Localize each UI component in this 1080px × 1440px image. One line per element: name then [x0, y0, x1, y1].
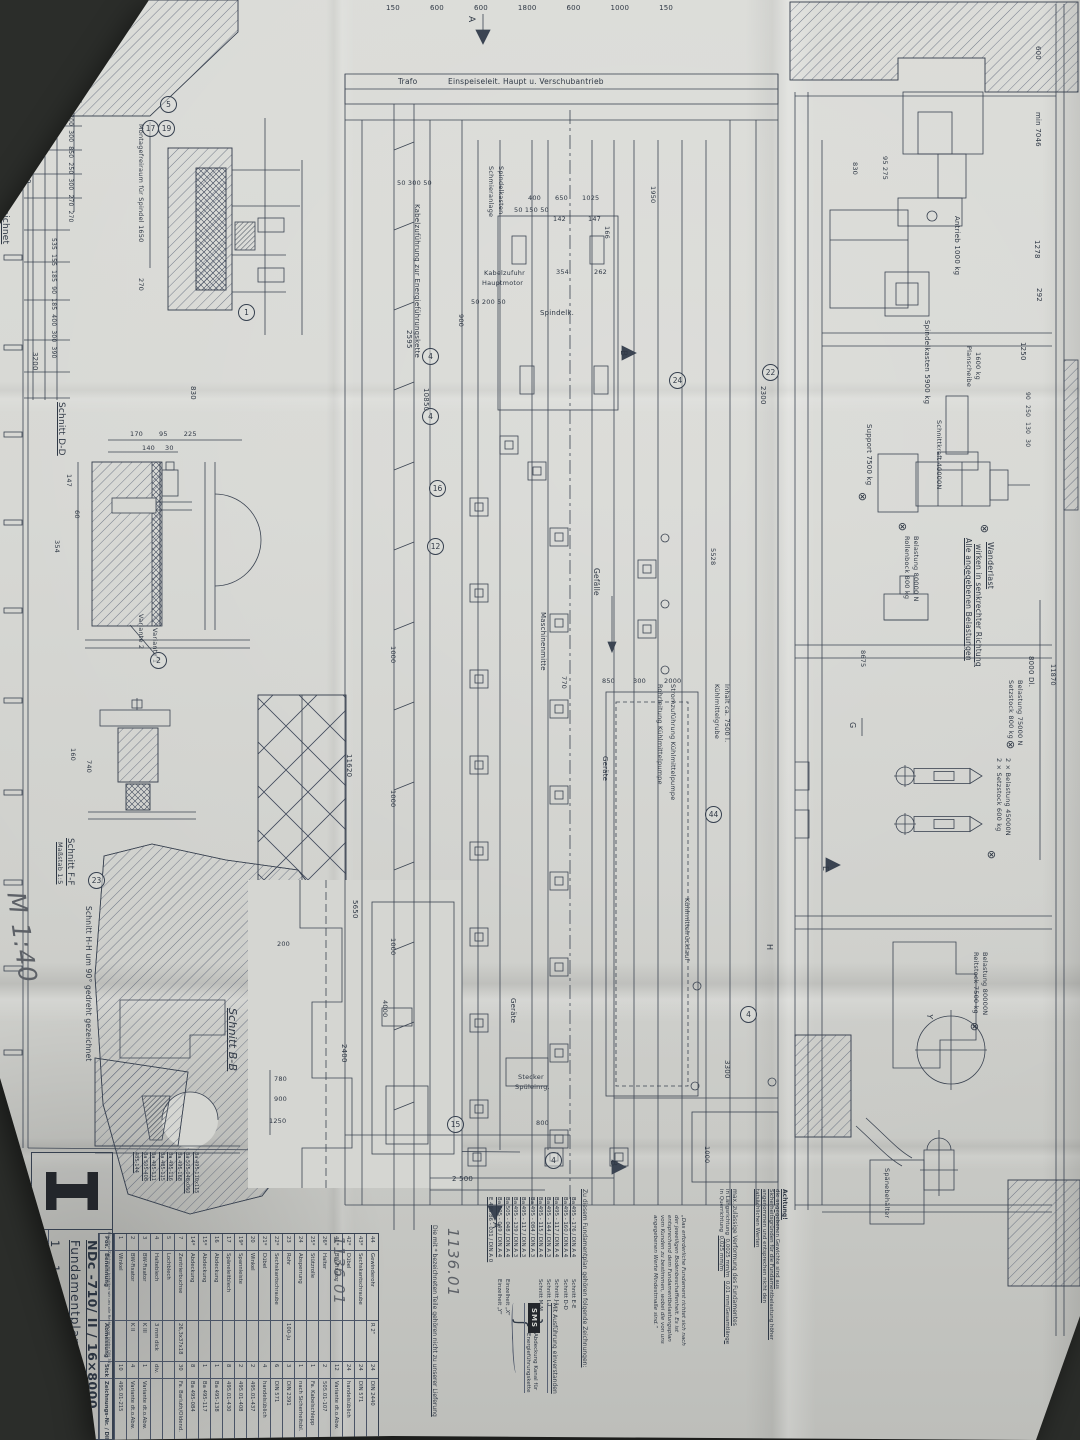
- dim-value: 90: [50, 286, 57, 294]
- dim: 142: [553, 216, 566, 223]
- spindelkasten-label: Spindelkasten 5900 kg: [922, 320, 930, 404]
- part-dim: K III: [139, 1321, 150, 1362]
- part-pos: 15*: [199, 1234, 210, 1251]
- part-qty: 4: [127, 1362, 138, 1379]
- drawing-title: Fundamentplan: [68, 1240, 82, 1347]
- support-label: Support 7500 kg: [864, 424, 872, 485]
- part-ref: Fa. Kabelschlepp: [307, 1379, 318, 1440]
- dim: 147: [65, 474, 72, 487]
- field-divider: [40, 1230, 41, 1350]
- dim: 600: [1033, 46, 1041, 60]
- part-name: Stützrolle: [307, 1251, 318, 1321]
- part-ref: DIN 571: [355, 1379, 366, 1440]
- parts-row: 43*Sechskantschraube24DIN 571: [354, 1234, 366, 1440]
- part-qty: 10: [115, 1362, 126, 1379]
- part-dim: [247, 1321, 258, 1362]
- section-letter-h: H: [764, 944, 773, 950]
- dim: 1950: [649, 186, 656, 203]
- part-name: Abdeckung: [211, 1251, 222, 1321]
- balloon-4: 4: [740, 1006, 757, 1023]
- part-name: Halter: [319, 1251, 330, 1321]
- part-ref: DIN 2440: [367, 1379, 378, 1440]
- part-qty: 2: [235, 1362, 246, 1379]
- dim: 1000: [389, 790, 396, 807]
- part-pos: 23: [283, 1234, 294, 1251]
- right-dimension-chain: 9025013030: [1024, 392, 1031, 447]
- dim-value: 150: [386, 4, 400, 12]
- dim: 800: [536, 1120, 549, 1127]
- drawing-ref: Ba 495 - 117 / DIN A 3: [520, 1197, 527, 1279]
- part-name: Abdeckung: [199, 1251, 210, 1321]
- part-dim: [259, 1321, 270, 1362]
- part-dim: 3 mm dick: [151, 1321, 162, 1362]
- dim-value: 400: [528, 194, 541, 202]
- part-dim: [223, 1321, 234, 1362]
- part-dim: [115, 1321, 126, 1362]
- part-pos: 7: [175, 1234, 186, 1251]
- masstab-label: Maßstab 1:5: [56, 842, 63, 884]
- margin-ref: Ba 495-110x115: [193, 1152, 199, 1232]
- dim: 270: [137, 278, 144, 291]
- variante-2-label: Variante 2: [137, 614, 144, 649]
- dim: 1000: [703, 1146, 710, 1163]
- margin-ref: Ba 495-116: [168, 1152, 174, 1232]
- part-dim: [235, 1321, 246, 1362]
- part-dim: [355, 1321, 366, 1362]
- part-pos: 1: [115, 1234, 126, 1251]
- dim: 50 200 50: [471, 299, 506, 306]
- part-name: Gewinderohr: [367, 1251, 378, 1321]
- part-pos: 17: [223, 1234, 234, 1251]
- dim-value: 850: [602, 677, 615, 685]
- part-qty: 24: [355, 1362, 366, 1379]
- dim-value: 185: [50, 270, 57, 282]
- planscheibe-label-2: 1600 kg: [974, 352, 981, 380]
- beam-logo-icon: [46, 1172, 98, 1210]
- balloon-24: 24: [669, 372, 686, 389]
- drawing-ref: Ba 495 - 160 / DIN A 4: [561, 1197, 568, 1279]
- part-ref: nach Sicherheitsbl.: [295, 1379, 306, 1440]
- dim-value: 1000: [611, 4, 630, 12]
- dim-value: 850: [67, 146, 74, 158]
- dim: 200: [277, 941, 290, 948]
- part-pos: 25*: [307, 1234, 318, 1251]
- part-name: BW-Fixator: [331, 1251, 342, 1321]
- parts-row: 17Späneleitblech8495.01-430: [222, 1234, 234, 1440]
- load-point-icon: ⊗: [986, 850, 997, 859]
- part-qty: 24: [343, 1362, 354, 1379]
- part-name: Sechskantschraube: [271, 1251, 282, 1321]
- part-ref: handelsüblich: [259, 1379, 270, 1440]
- parts-row: 25*Stützrolle1Fa. Kabelschlepp: [306, 1234, 318, 1440]
- margin-ref: Ba 495-168: [176, 1152, 182, 1232]
- balloon-12: 12: [427, 538, 444, 555]
- dim-value: 170: [130, 430, 143, 438]
- deform-row-label: in Querrichtung: [718, 1189, 724, 1232]
- part-dim: R 2": [367, 1321, 378, 1362]
- section-dd: [78, 440, 261, 660]
- dim-value: 1025: [582, 194, 599, 202]
- signature-squiggle: [511, 1303, 520, 1373]
- dim-value: 390: [50, 346, 57, 358]
- signature-squiggle: [35, 1238, 43, 1278]
- part-ref: Variante dt.o.Abw.: [139, 1379, 150, 1440]
- parts-row: 23Rohr100-Ju3DIN 2391: [282, 1234, 294, 1440]
- reitstock-label-2: Belastung 80000N: [981, 952, 988, 1015]
- part-ref: 495.01-430: [223, 1379, 234, 1440]
- spindelk-label: Spindelk.: [540, 310, 574, 318]
- drawing-ref: Ba 495 - 115 / DIN A 4: [536, 1197, 543, 1279]
- maschinenmitte-label: Maschinenmitte: [538, 612, 546, 671]
- section-hh-label: Schnitt H-H um 90° gedreht gezeichnet: [84, 906, 92, 1062]
- dim: 1250: [269, 1118, 286, 1125]
- geraete-label-2: Geräte: [508, 998, 516, 1023]
- dim-value: 1800: [518, 4, 537, 12]
- part-qty: 24: [367, 1362, 378, 1379]
- attention-body: die angegebenen Gewichte sind aus Sicher…: [753, 1189, 781, 1341]
- dim: 5650: [350, 900, 358, 919]
- part-ref: DIN 2391: [283, 1379, 294, 1440]
- dim-value: 30: [1024, 439, 1031, 447]
- spaenebehaelter-label: Spänebehälter: [883, 1168, 890, 1218]
- logo-cell: [32, 1153, 112, 1230]
- part-name: BW-Fixator: [127, 1251, 138, 1321]
- part-qty: 1: [139, 1362, 150, 1379]
- dim-value: 600: [430, 4, 444, 12]
- parts-row: 26*Halter2505.01-107: [318, 1234, 330, 1440]
- schmieranlage-label-2: Spindelkasten: [497, 166, 504, 214]
- dim-value: 300: [67, 130, 74, 142]
- part-name: Abdeckung: [187, 1251, 198, 1321]
- dim-value: 300: [50, 330, 57, 342]
- part-dim: K II: [127, 1321, 138, 1362]
- dim-value: 250: [67, 162, 74, 174]
- parts-row: 7Zentrierbuchse26,3x37x1830Fa. Barluth/O…: [174, 1234, 186, 1440]
- part-name: Späneleitblech: [223, 1251, 234, 1321]
- drawing-ref: Ba 495 - 144 / DIN A 3: [545, 1197, 552, 1279]
- dim-value: 300: [67, 114, 74, 126]
- dim-value: 650: [555, 194, 568, 202]
- dim: 3300: [722, 1060, 730, 1079]
- part-ref: Variante dt.o.Abw.: [331, 1379, 342, 1440]
- kabelzufuhr-label-2: Hauptmotor: [482, 280, 523, 287]
- dim: 2300: [758, 386, 766, 405]
- load-point-icon: ⊗: [979, 524, 990, 533]
- dim-value: 300: [67, 178, 74, 190]
- dim-value: 140: [142, 444, 155, 452]
- spindel-dimension-chain: 4006501025: [528, 194, 599, 202]
- wanderlast-label: Wanderlast: [985, 542, 994, 589]
- parts-row: 22*Sechskantschraube6DIN 571: [270, 1234, 282, 1440]
- part-qty: 4: [259, 1362, 270, 1379]
- einspeise-label: Einspeiseleit. Haupt u. Verschubantrieb: [448, 78, 604, 86]
- dim: 3200: [30, 352, 38, 371]
- part-qty: 1: [307, 1362, 318, 1379]
- part-ref: Ba 495-117: [199, 1379, 210, 1440]
- part-ref: 495.01-408: [235, 1379, 246, 1440]
- part-pos: 5: [163, 1234, 174, 1251]
- dim: 830: [188, 386, 196, 400]
- dim-value: 300: [633, 677, 646, 685]
- approval-text: Mit Ausführung einverstanden: [551, 1303, 558, 1435]
- dim: 1250: [1018, 342, 1026, 361]
- drawing-name: Schnitt D-D: [561, 1279, 568, 1310]
- cc-dimension-ladder: 500200300300850250300270270: [67, 82, 74, 223]
- dim-value: 155: [50, 254, 57, 266]
- balloon-4: 4: [545, 1152, 562, 1169]
- antrieb-label: Antrieb 1000 kg: [952, 216, 960, 275]
- photo-of-foundation-plan: Schnitt C-C um 90° gedreht gezeichnet Mo…: [0, 0, 1080, 1440]
- stamp-line: [524, 1303, 525, 1393]
- part-ref: 495.01-437: [247, 1379, 258, 1440]
- deformation-title: max. zulässige Verformung des Fundamente…: [731, 1189, 739, 1349]
- part-ref: DIN 571: [271, 1379, 282, 1440]
- belastungen-note: Alle angegebenen Belastungen: [964, 538, 972, 661]
- belastungen-note-2: wirken in senkrechter Richtung: [974, 544, 982, 667]
- parts-row: 16Abdeckung1Ba 495-138: [210, 1234, 222, 1440]
- part-pos: 44: [367, 1234, 378, 1251]
- drawing-name: Schnitt E-E: [569, 1279, 576, 1308]
- deform-row-value: 0,0025 mm/m: [725, 1238, 731, 1277]
- part-qty: 6: [271, 1362, 282, 1379]
- dim-value: 185: [50, 298, 57, 310]
- dim-value: 250: [1024, 405, 1031, 417]
- setzstock600-label-2: 2 × Belastung 45000N: [1004, 758, 1011, 836]
- part-qty: 3: [283, 1362, 294, 1379]
- dim: 770: [560, 676, 567, 689]
- balloon-19: 19: [158, 120, 175, 137]
- dim: 262: [594, 269, 607, 276]
- parts-row: 5Lochblech: [162, 1234, 174, 1440]
- section-cc: [24, 0, 302, 400]
- dim: 830: [851, 162, 858, 175]
- part-pos: 42*: [343, 1234, 354, 1251]
- cc-dimension-ladder-2: 53515518590185400300390: [50, 238, 57, 358]
- part-ref: Ba 495-084: [187, 1379, 198, 1440]
- drawing-number: F495-05: [34, 1393, 45, 1436]
- dim-value: 270: [67, 194, 74, 206]
- trafo-label: Trafo: [398, 78, 417, 86]
- schmieranlage-label: Schmieranlage: [487, 166, 494, 217]
- part-ref: [151, 1379, 162, 1440]
- drawing-name: Einzelheit „X“: [503, 1279, 510, 1316]
- drawings-list-row: Ba 505 - 049 / DIN A 4Einzelheit „Y“: [495, 1197, 502, 1417]
- parts-rows: 44GewinderohrR 2"24DIN 244043*Sechskants…: [114, 1234, 378, 1440]
- part-pos: 16: [211, 1234, 222, 1251]
- drawings-list-row: Ba 495 - 160 / DIN A 4Schnitt D-D: [561, 1197, 568, 1417]
- rollenbock-label: Rollenbock 800 kg: [903, 536, 910, 599]
- part-name: Dübel: [343, 1251, 354, 1321]
- part-name: Dübel: [259, 1251, 270, 1321]
- drawing-sheet: Schnitt C-C um 90° gedreht gezeichnet Mo…: [0, 0, 1080, 1440]
- notes-block: Achtung! die angegebenen Gewichte sind a…: [418, 1185, 790, 1440]
- montagefreiraum-label: Montagefreiraum für Spindel 1650: [137, 124, 144, 242]
- parts-row: 1Winkel10495.01-215: [114, 1234, 126, 1440]
- dim-value: 150: [659, 4, 673, 12]
- drawing-name: Schnitt J-J: [553, 1279, 560, 1305]
- stecker-label: Stecker: [518, 1074, 544, 1081]
- name-plate: Für diese Zeichnung behalten wir uns all…: [31, 1152, 113, 1440]
- part-ref: 495.01-215: [115, 1379, 126, 1440]
- geraete-label: Geräte: [600, 756, 608, 781]
- dim-value: 2000: [664, 677, 681, 685]
- part-ref: Variante dt.o.Abw.: [127, 1379, 138, 1440]
- part-dim: [307, 1321, 318, 1362]
- parts-row: 19*Spannleiste2495.01-408: [234, 1234, 246, 1440]
- part-pos: 4: [151, 1234, 162, 1251]
- part-name: BW-Fixator: [139, 1251, 150, 1321]
- top-dimension-chain: 15060060018006001000150: [386, 4, 673, 12]
- dim: 4000: [381, 1000, 388, 1017]
- dim: 160: [69, 748, 76, 761]
- attention-note: Achtung! die angegebenen Gewichte sind a…: [753, 1189, 788, 1341]
- part-dim: [271, 1321, 282, 1362]
- section-ff: [88, 698, 196, 819]
- part-pos: 26*: [319, 1234, 330, 1251]
- balloon-22: 22: [762, 364, 779, 381]
- dim: 166: [603, 226, 610, 239]
- part-pos: 41*: [331, 1234, 342, 1251]
- margin-ref: Ba 505-048x060: [185, 1152, 191, 1232]
- margin-ref: Ba 505-408: [142, 1152, 148, 1232]
- part-name: Winkel: [115, 1251, 126, 1321]
- part-dim: [343, 1321, 354, 1362]
- part-dim: [319, 1321, 330, 1362]
- section-letter-e: E: [820, 866, 829, 871]
- part-qty: 8: [187, 1362, 198, 1379]
- dim: 1000: [389, 646, 396, 663]
- part-ref: Fa. Barluth/Oldend.: [175, 1379, 186, 1440]
- balloon-15: 15: [447, 1116, 464, 1133]
- load-point-icon: ⊗: [857, 492, 868, 501]
- dim: 2400: [339, 1044, 347, 1063]
- dd-dimension-chain-2: 14030: [142, 444, 174, 452]
- drawings-list-row: E 495.86 - 031 / DIN A 0: [487, 1197, 494, 1417]
- dim-value: 90: [1024, 392, 1031, 400]
- part-dim: [187, 1321, 198, 1362]
- drawings-list-row: Ba 505 - 048 / DIN A 4Einzelheit „X“: [503, 1197, 510, 1417]
- drawing-ref: Ba 495 - 117 / DIN A 4: [553, 1197, 560, 1279]
- section-letter-a: A: [466, 16, 476, 22]
- drawings-list-header: Zu diesem Fundamentplan gehören folgende…: [581, 1189, 589, 1368]
- mid-dimension-chain: 8503002000: [602, 677, 681, 685]
- kabelzufuhr-label: Kabelzufuhr: [484, 270, 525, 277]
- dim: 740: [85, 760, 92, 773]
- load-point-icon: ⊗: [897, 522, 908, 531]
- dim: 8000 Dl.: [1026, 656, 1034, 687]
- load-point-icon: ⊗: [969, 1022, 980, 1031]
- part-qty: [163, 1362, 174, 1379]
- dim: 50 300 50: [397, 180, 432, 187]
- rollenbock-label-2: Belastung 80000 N: [912, 536, 919, 602]
- part-pos: 20: [247, 1234, 258, 1251]
- name-plate-main: Für diese Zeichnung behalten wir uns all…: [32, 1230, 112, 1439]
- part-name: Sechskantschraube: [355, 1251, 366, 1321]
- part-qty: 1: [211, 1362, 222, 1379]
- parts-row: 15*Abdeckung1Ba 495-117: [198, 1234, 210, 1440]
- drawings-list-row: Ba 495 - 176 / DIN A 4Schnitt E-E: [569, 1197, 576, 1417]
- margin-ref: Ba 485-115: [159, 1152, 165, 1232]
- parts-row: 41*BW-Fixator12Variante dt.o.Abw.: [330, 1234, 342, 1440]
- dim: 5950: [23, 165, 31, 184]
- part-qty: 30: [175, 1362, 186, 1379]
- part-pos: 19*: [235, 1234, 246, 1251]
- load-point-icon: ⊗: [1005, 740, 1016, 749]
- margin-ref: 485-144: [134, 1152, 140, 1232]
- stromzufuehrung-label: Stromzuführung Kühlmittelpumpe: [669, 684, 676, 800]
- gefaelle-label: Gefälle: [592, 568, 600, 596]
- part-dim: 100-Ju: [283, 1321, 294, 1362]
- part-pos: 3: [139, 1234, 150, 1251]
- section-cc-label: Schnitt C-C um 90° gedreht gezeichnet: [0, 60, 10, 244]
- drawing-ref: Ba 495 - 139 / DIN A 3: [512, 1197, 519, 1279]
- section-letter-y: Y: [924, 1014, 933, 1019]
- part-qty: 2: [247, 1362, 258, 1379]
- title-block: 44GewinderohrR 2"24DIN 244043*Sechskants…: [30, 1150, 405, 1440]
- dim: 8675: [859, 650, 866, 667]
- star-note: Die mit * bezeichneten Teile gehören nic…: [431, 1225, 439, 1440]
- dim: 7700: [36, 80, 44, 99]
- dim: 2595: [404, 330, 412, 349]
- setzstock600-label: 2 × Setzstock 600 kg: [995, 758, 1002, 831]
- balloon-1: 1: [238, 304, 255, 321]
- part-ref: [163, 1379, 174, 1440]
- reitstock-label: Reitstock 7500 kg: [972, 952, 979, 1014]
- dim: 147: [588, 216, 601, 223]
- part-dim: [331, 1321, 342, 1362]
- parts-row: 20Winkel2495.01-437: [246, 1234, 258, 1440]
- part-ref: Ba 495-138: [211, 1379, 222, 1440]
- kuehlmittelgrube-label-2: Inhalt ca. 7500 l.: [723, 684, 730, 742]
- parts-row: 4Halteblech3 mm dickdiv.: [150, 1234, 162, 1440]
- dim: 1278: [1032, 240, 1040, 259]
- dim-value: 95: [159, 430, 168, 438]
- dim: 5528: [709, 548, 716, 565]
- dim: 292: [1034, 288, 1042, 302]
- deform-row-value: 0,025 mm/m: [718, 1236, 724, 1271]
- dim-value: 30: [165, 444, 174, 452]
- machine-elevation: [790, 2, 1080, 1286]
- kabelzufuehrung-label: Kabelzuführung zur Energieführungskette: [412, 204, 420, 358]
- part-dim: [199, 1321, 210, 1362]
- balloon-16: 16: [429, 480, 446, 497]
- drawing-ref: Ba 505 - 049 / DIN A 4: [495, 1197, 502, 1279]
- part-name: Winkel: [247, 1251, 258, 1321]
- parts-row: 21*Dübel4handelsüblich: [258, 1234, 270, 1440]
- section-letter-b: B: [608, 1160, 618, 1166]
- section-bb-label: Schnitt B-B: [226, 1008, 238, 1071]
- part-dim: 26,3x37x18: [175, 1321, 186, 1362]
- margin-ref: Ba 495-111: [151, 1152, 157, 1232]
- dim: 1000: [389, 938, 396, 955]
- part-ref: 505.01-107: [319, 1379, 330, 1440]
- rights-note: Für diese Zeichnung behalten wir uns all…: [107, 1232, 111, 1436]
- dim: 11870: [1049, 664, 1056, 686]
- balloon-4: 4: [422, 408, 439, 425]
- drawing-ref: Ba 495 - 176 / DIN A 4: [569, 1197, 576, 1279]
- dim-value: 600: [474, 4, 488, 12]
- part-qty: 8: [223, 1362, 234, 1379]
- parts-row: 44GewinderohrR 2"24DIN 2440: [366, 1234, 378, 1440]
- part-pos: 14*: [187, 1234, 198, 1251]
- schnittkraft-label: Schnittkraft 40000N: [935, 420, 942, 489]
- dim: 60: [73, 510, 80, 519]
- part-name: Lochblech: [163, 1251, 174, 1321]
- dim: 354: [53, 540, 60, 553]
- part-pos: 24: [295, 1234, 306, 1251]
- parts-row: 3BW-FixatorK III1Variante dt.o.Abw.: [138, 1234, 150, 1440]
- part-name: Spannleiste: [235, 1251, 246, 1321]
